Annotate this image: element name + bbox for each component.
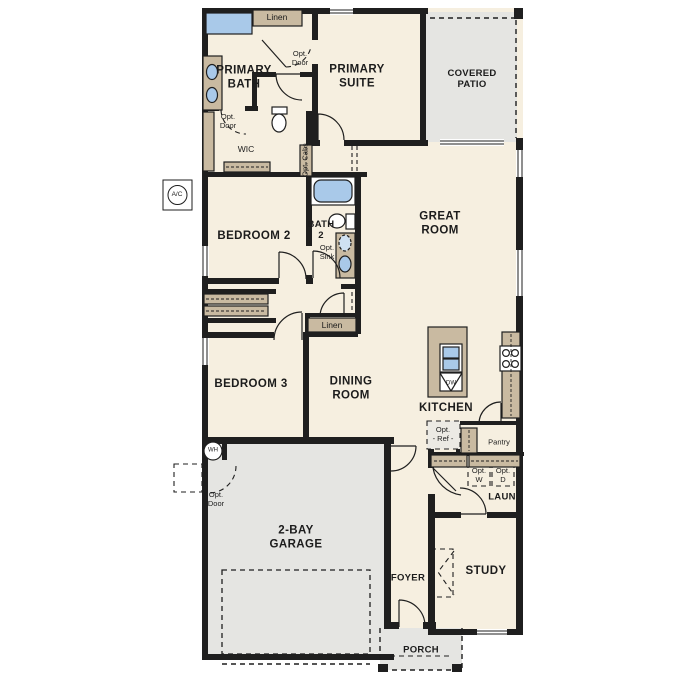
window-bedroom3	[201, 338, 209, 365]
window-study	[477, 629, 507, 636]
ac-unit-icon	[163, 180, 192, 210]
bathtub	[314, 180, 352, 202]
sink-icon	[207, 88, 218, 103]
linen-closet-hall	[308, 318, 356, 332]
dishwasher-icon	[440, 373, 462, 391]
garage-slab	[208, 437, 386, 657]
toilet-tank	[346, 214, 355, 229]
opt-door-landing	[174, 464, 202, 492]
window-great-room-right-1	[516, 150, 524, 177]
shower	[206, 13, 252, 34]
wic-wardrobe	[203, 112, 214, 171]
toilet-icon	[272, 114, 286, 132]
sink-icon	[207, 65, 218, 80]
toilet-tank	[272, 107, 287, 114]
window-great-room-right-2	[516, 250, 524, 296]
floor-plan: PRIMARY BATH PRIMARY SUITE COVERED PATIO…	[0, 0, 687, 687]
range-icon	[500, 346, 521, 371]
sink-icon	[339, 256, 351, 272]
water-heater-icon	[204, 442, 222, 460]
window-primary-suite	[330, 8, 353, 15]
toilet-icon	[329, 214, 345, 228]
floor-plan-drawing	[0, 0, 687, 687]
window-great-room-patio	[440, 139, 504, 146]
linen-closet-primary	[253, 10, 302, 26]
window-bedroom2	[201, 246, 209, 276]
sink-icon	[443, 359, 459, 370]
house-floor-lower	[388, 440, 523, 632]
opt-sink-icon	[339, 235, 351, 251]
patio-slab	[426, 12, 517, 142]
refrigerator-box	[427, 421, 460, 449]
sink-icon	[443, 347, 459, 358]
